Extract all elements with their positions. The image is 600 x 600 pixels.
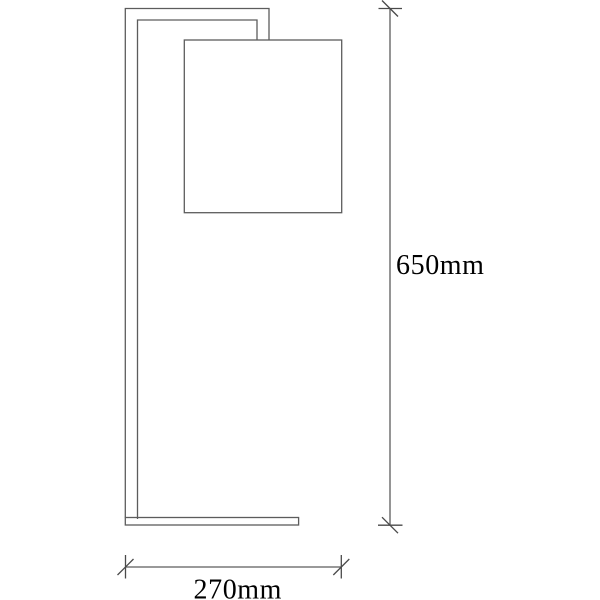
svg-text:270mm: 270mm bbox=[194, 575, 283, 600]
svg-text:650mm: 650mm bbox=[396, 250, 485, 281]
